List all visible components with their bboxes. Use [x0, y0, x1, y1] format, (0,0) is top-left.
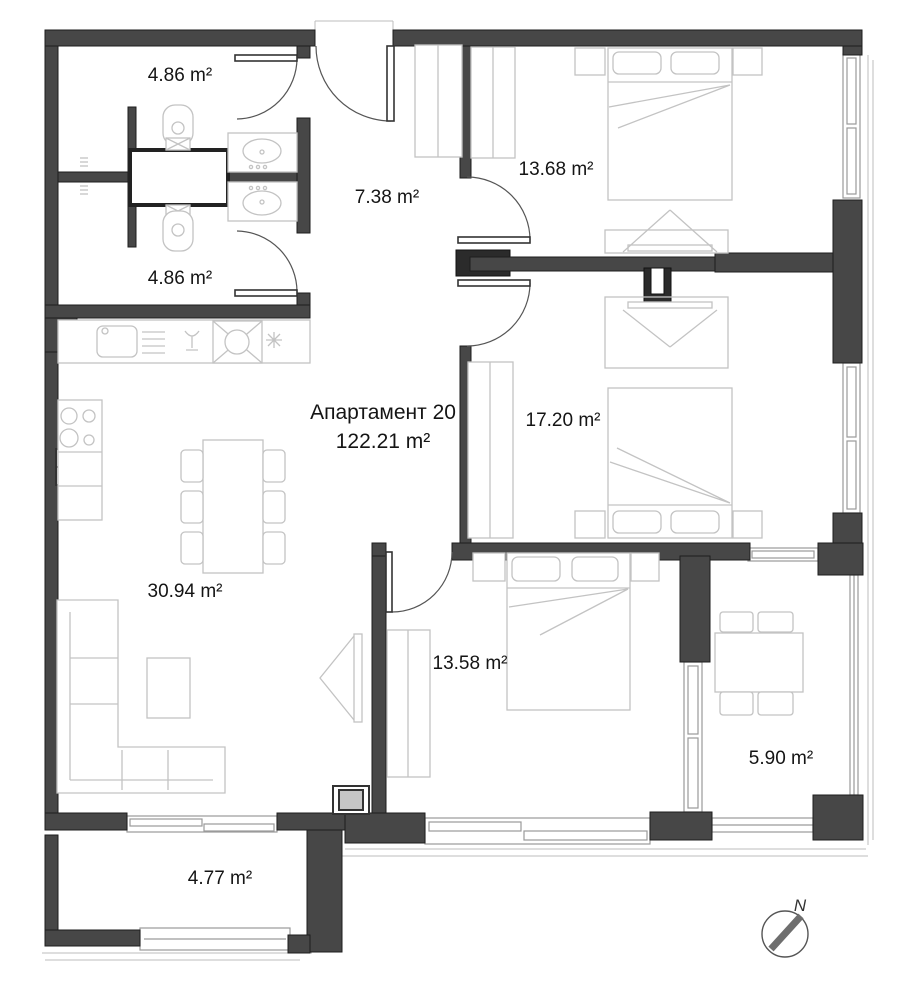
chair	[720, 692, 753, 715]
glazing-terrace-bottom	[712, 818, 813, 832]
living-room-furniture	[57, 600, 362, 793]
chair	[758, 612, 793, 632]
glazing-terrace-right	[850, 575, 858, 795]
toilet-top	[163, 105, 193, 150]
window-living-balcony	[127, 816, 277, 832]
terrace-furniture	[715, 612, 803, 715]
nightstand	[575, 511, 605, 538]
label-bedroom-mid: 17.20 m²	[526, 410, 601, 431]
compass-needle	[771, 916, 801, 949]
nightstand	[473, 553, 505, 581]
compass-n-label: N	[794, 896, 807, 915]
tv-living	[320, 634, 362, 722]
window-bedroom-top-right	[843, 54, 860, 198]
toilet-bottom	[163, 205, 193, 251]
apartment-title: Апартамент 20	[310, 401, 456, 424]
label-bedroom-bottom: 13.58 m²	[433, 653, 508, 674]
label-hall: 7.38 m²	[355, 187, 419, 208]
tv-dresser	[605, 297, 728, 368]
coffee-table	[147, 658, 190, 718]
bathroom-bottom-door	[235, 231, 297, 296]
chair	[181, 491, 203, 523]
chair	[758, 692, 793, 715]
north-compass: N	[762, 896, 808, 957]
bathroom-top-door	[235, 55, 297, 119]
sink-top	[228, 133, 297, 172]
window-bed3-terrace	[684, 662, 702, 812]
tv-dresser	[605, 210, 728, 253]
chair	[263, 491, 285, 523]
lamp-symbol	[266, 332, 282, 348]
bed	[608, 388, 732, 538]
label-bathroom-bottom: 4.86 m²	[148, 268, 212, 289]
chair	[181, 532, 203, 564]
bed	[608, 48, 732, 200]
bedroom-mid-right-furniture	[468, 297, 762, 538]
bedroom-bottom-furniture	[387, 553, 659, 777]
bedroom-bottom-door	[386, 552, 452, 612]
nightstand	[631, 553, 659, 581]
chair	[181, 450, 203, 482]
entry-door	[316, 46, 394, 121]
bed	[507, 553, 630, 710]
apartment-total-area: 122.21 m²	[336, 430, 431, 453]
sink-bottom	[228, 182, 297, 221]
kitchen	[58, 320, 310, 520]
label-balcony: 4.77 m²	[188, 868, 252, 889]
bedroom-top-right-furniture	[471, 47, 762, 253]
sofa	[57, 600, 225, 793]
dining-table	[203, 440, 263, 573]
window-bedroom-bottom	[425, 818, 650, 844]
hall-wardrobe	[415, 45, 462, 157]
label-living: 30.94 m²	[148, 581, 223, 602]
label-bathroom-top: 4.86 m²	[148, 65, 212, 86]
cooktop-hood	[213, 321, 262, 363]
stove	[58, 400, 102, 520]
label-bedroom-top: 13.68 m²	[519, 159, 594, 180]
bedroom-top-right-door	[458, 177, 530, 243]
dining-set	[181, 440, 285, 573]
terrace-table	[715, 633, 803, 692]
living-shaft-box	[333, 786, 369, 814]
nightstand	[733, 511, 762, 538]
nightstand	[733, 48, 762, 75]
chair	[263, 450, 285, 482]
chair	[720, 612, 753, 632]
railing-balcony-left	[140, 928, 290, 950]
window-bed2-terrace	[748, 548, 818, 561]
window-bedroom-mid-right	[843, 363, 860, 513]
floor-plan: N 4.86 m² 4.86 m² 7.38 m² 13.68 m² 17.20…	[0, 0, 919, 1000]
nightstand	[575, 48, 605, 75]
chair	[263, 532, 285, 564]
floor-plan-page: N 4.86 m² 4.86 m² 7.38 m² 13.68 m² 17.20…	[0, 0, 919, 1000]
bathroom-shaft-box	[130, 150, 228, 205]
label-terrace: 5.90 m²	[749, 748, 813, 769]
bedroom-mid-right-door	[458, 280, 530, 346]
